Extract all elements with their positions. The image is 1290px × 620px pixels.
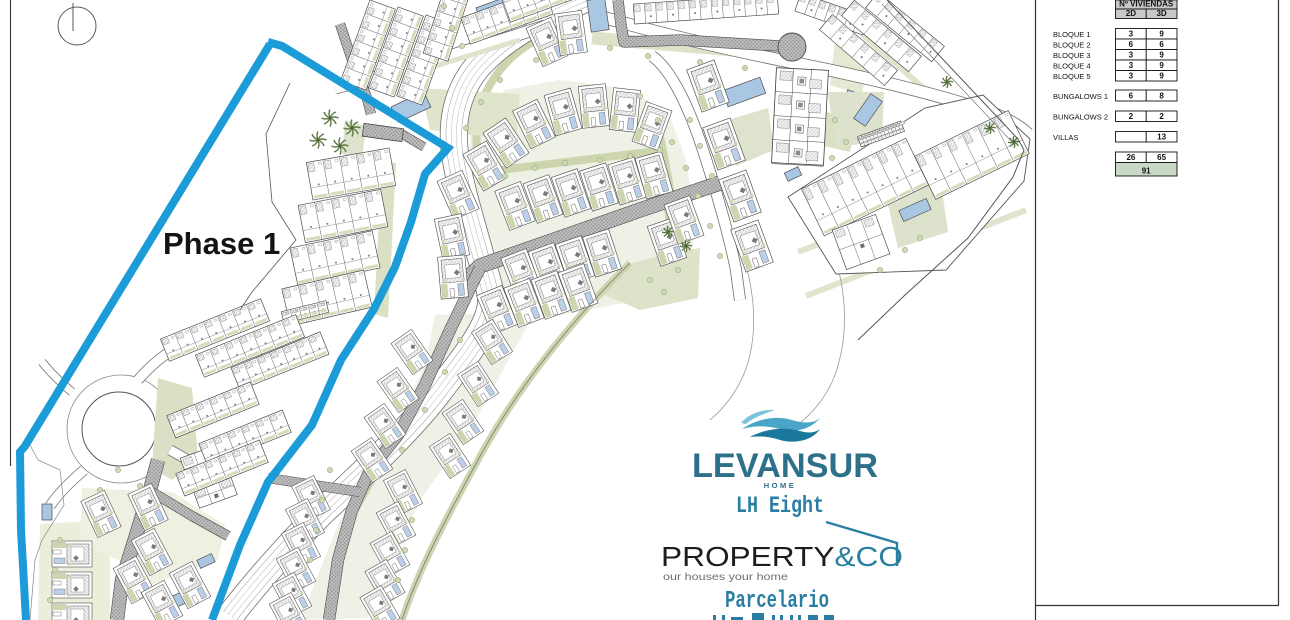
svg-text:6: 6 [1129,40,1134,49]
svg-text:26: 26 [1126,153,1135,162]
svg-text:2: 2 [1129,112,1134,121]
svg-text:8: 8 [1159,92,1164,101]
svg-text:BLOQUE 2: BLOQUE 2 [1053,41,1091,50]
svg-text:our houses your home: our houses your home [663,571,788,583]
svg-text:LH Eight: LH Eight [736,493,824,519]
svg-text:65: 65 [1157,153,1166,162]
svg-text:BLOQUE 5: BLOQUE 5 [1053,72,1091,81]
svg-text:Parcelario: Parcelario [725,588,829,615]
svg-text:9: 9 [1159,51,1164,60]
svg-text:LEVANSUR: LEVANSUR [692,447,878,485]
svg-text:3: 3 [1129,30,1134,39]
svg-text:2: 2 [1159,112,1164,121]
svg-text:6: 6 [1159,40,1164,49]
svg-text:BLOQUE 4: BLOQUE 4 [1053,62,1091,71]
svg-text:HOME: HOME [764,481,797,490]
svg-text:VILLAS: VILLAS [1053,133,1078,142]
svg-text:PROPERTY&CO: PROPERTY&CO [661,541,903,572]
svg-text:BLOQUE 3: BLOQUE 3 [1053,51,1091,60]
svg-text:6: 6 [1129,92,1134,101]
svg-text:9: 9 [1159,30,1164,39]
svg-text:Phase 1: Phase 1 [163,226,280,261]
svg-text:BUNGALOWS 2: BUNGALOWS 2 [1053,113,1108,122]
svg-text:BUNGALOWS 1: BUNGALOWS 1 [1053,92,1108,101]
svg-text:91: 91 [1142,167,1151,176]
svg-text:3D: 3D [1156,9,1166,18]
svg-text:BLOQUE 1: BLOQUE 1 [1053,30,1091,39]
svg-text:Nº VIVIENDAS: Nº VIVIENDAS [1119,0,1174,9]
svg-text:9: 9 [1159,61,1164,70]
svg-text:9: 9 [1159,72,1164,81]
svg-text:3: 3 [1129,72,1134,81]
svg-text:3: 3 [1129,61,1134,70]
svg-text:3: 3 [1129,51,1134,60]
svg-text:13: 13 [1157,133,1166,142]
svg-text:2D: 2D [1126,9,1136,18]
